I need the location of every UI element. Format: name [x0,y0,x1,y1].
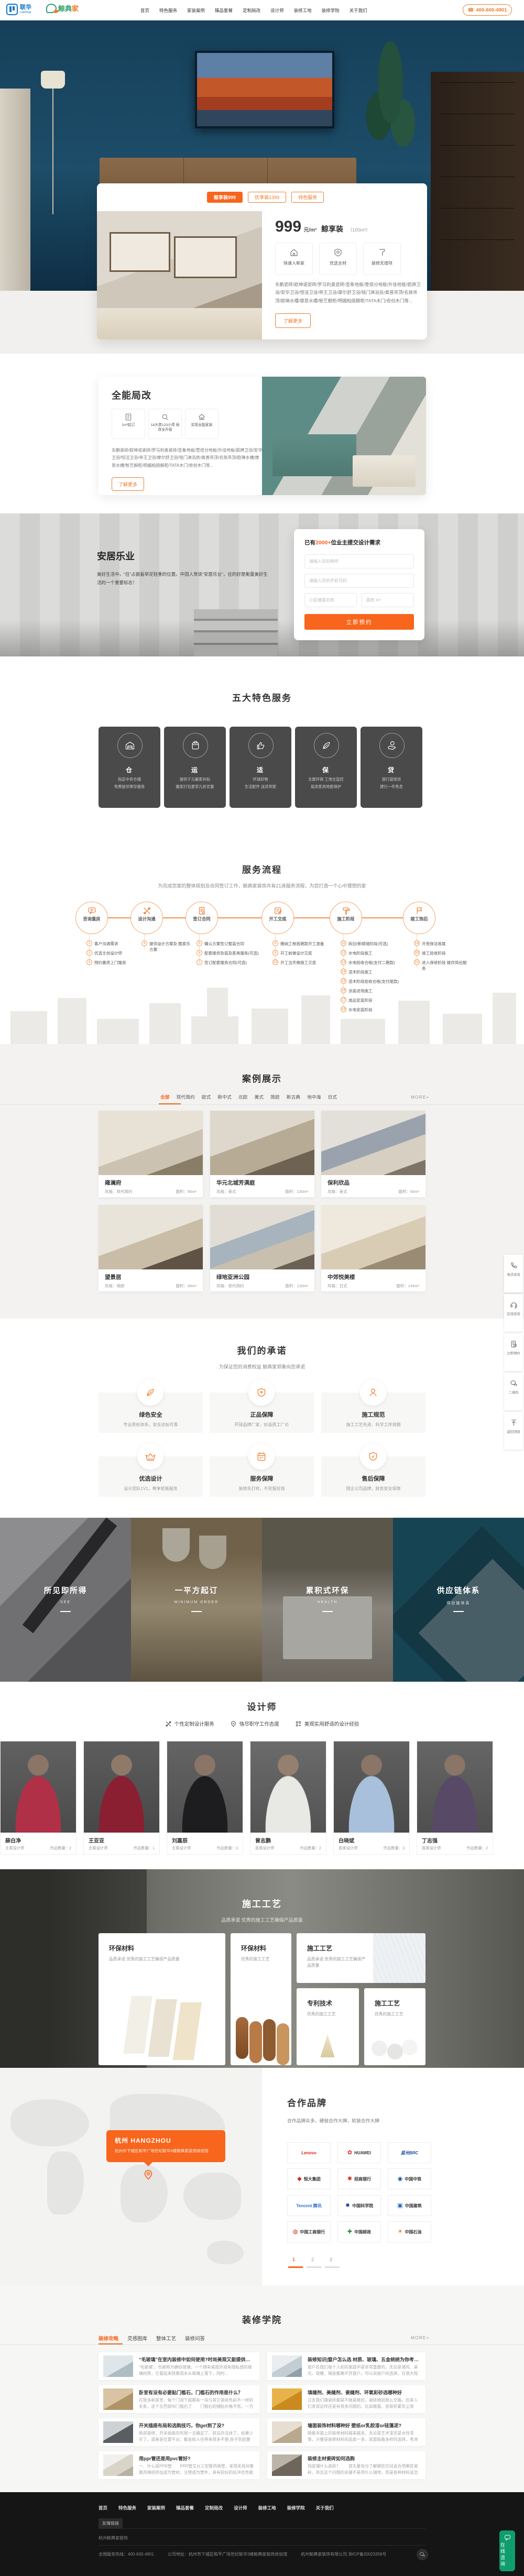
designer-photo [167,1741,243,1833]
map-continent [183,2173,241,2220]
flag-icon [415,906,424,915]
reno-learn-more-button[interactable]: 了解更多 [112,477,144,491]
name-input[interactable] [304,554,414,568]
stage-kickoff: 开工交底 [261,902,294,934]
crown-icon [145,1451,156,1462]
nav-about[interactable]: 关于我们 [350,7,367,14]
nav-academy[interactable]: 装修学院 [322,7,340,14]
brand-logo-evergrande: ◆恒大集团 [287,2168,331,2189]
nav-home[interactable]: 首页 [140,7,149,14]
case-tab-all[interactable]: 全部 [160,1093,170,1100]
callout-address: 杭州市下城区和平广场世纪联华3楼鲸典家装饰体验馆 [115,2148,209,2154]
world-map [0,2068,262,2285]
service-card-storage: 仓 指定中央仓储 免费提供寄存服务 [99,727,160,808]
strip-wysiwyg: 所见即所得SEE [0,1518,131,1682]
brand-logo-icbc: ◍中国工商银行 [287,2221,331,2242]
pagination-bar-3[interactable] [325,2266,340,2268]
package-tabs: 鲸享装999 优享装1399 特色服务 [207,192,324,203]
promise-title: 我们的承诺 [0,1343,524,1356]
lianhua-logo[interactable]: 联华 Lianhua [6,4,31,15]
brand-logo-lenovo: Lenovo [287,2142,331,2163]
skyline-building [301,995,330,1044]
service-line2: 生活配件 送货到家 [230,784,291,790]
case-photo [99,1111,203,1175]
house-icon [289,248,299,257]
sidebar-phone-consult[interactable]: 电话咨询 [504,1255,523,1292]
blueprint-decoration [373,1933,425,1983]
paint-tool-icon [377,248,387,257]
designer-photo [250,1741,326,1833]
pinwheel-icon [165,1720,172,1727]
designer-card[interactable]: 丁志强 首席设计师 作品数量：2 [417,1741,493,1855]
stage-construction: 施工阶段 [330,902,362,934]
case-card[interactable]: 保利欣品 风格：美式 面积：90m² [321,1111,425,1197]
case-card[interactable]: 中郊悦美楼 风格：日式 面积：145m² [321,1205,425,1291]
shield-icon [333,248,343,257]
reno-feature-min-order: 1m²起订 [112,409,145,439]
footer-wechat-button[interactable] [417,2549,428,2560]
feature-label: 装修无增项 [364,260,400,266]
service-line1: 全屋环保 工地全监控 [295,777,357,782]
paint-roller-icon [342,906,351,915]
article-card[interactable]: 装修知识|窗户怎么选 材质、玻璃、五金统统为你考虑到窗户在我们每个人的的家庭中是… [267,2352,425,2380]
submit-appointment-button[interactable]: 立即预约 [304,614,414,630]
price-unit: 元/m² [304,227,317,233]
contract-icon [198,906,206,915]
designer-features: 个性定制设计服务 恪尽职守工作态度 美观实用舒适的设计经验 [0,1720,524,1727]
nav-custom-reno[interactable]: 定制局改 [243,7,260,14]
case-photo [321,1205,425,1269]
stage-contract: 签订合同 [185,902,218,934]
brand-logo-chinapost: ✚中国邮政 [337,2221,381,2242]
reno-kitchen-photo [262,377,426,495]
hotline-number: 400-600-4901 [476,7,507,13]
pagination-bar-1[interactable] [288,2266,303,2268]
skyline-building [341,1019,385,1044]
form-title-prefix: 已有 [304,540,315,546]
brand-logo-cmb: ✱招商银行 [337,2168,381,2189]
academy-tab-craft[interactable]: 整体工艺 [156,2334,176,2342]
tab-youxiang-1399[interactable]: 优享装1399 [248,192,286,203]
nav-cases[interactable]: 家装案例 [187,7,205,14]
academy-tab-qa[interactable]: 装修问答 [185,2334,205,2342]
location-check-icon [230,1720,237,1727]
tab-jingxiang-999[interactable]: 鲸享装999 [207,192,243,203]
promise-subtitle: 为保证您的消费权益 鲸典家郑重向您承诺 [0,1363,524,1370]
callout-city: 杭州 HANGZHOU [115,2136,171,2145]
cases-title: 案例展示 [0,1071,524,1084]
designer-photo [334,1741,409,1833]
service-line1: 提供千元搬家补贴 [164,777,226,782]
hero-right-bookcase [431,72,524,291]
article-thumb [272,2355,302,2377]
grid-circles-icon [295,1720,302,1727]
process-title: 服务流程 [0,862,524,875]
feature-select-materials: 优选主材 [319,243,357,275]
feature-label: 优选主材 [320,260,356,266]
pagination-bar-2[interactable] [307,2266,321,2268]
case-name: 望景居 [105,1273,122,1281]
hero-wall-art [195,51,334,128]
designer-card[interactable]: 薛白净 主案设计师 作品数量：2 [0,1741,77,1855]
academy-title: 装修学院 [0,2312,524,2326]
cases-active-underline [159,1103,181,1104]
phone-icon [510,1262,518,1269]
service-line2: 局改家具地面保护 [295,784,357,790]
sidebar-online-consult[interactable]: 在线咨询 [504,1294,523,1332]
process-subtitle: 为完成您家的整体规划及合同签订工作，鲸典家装饰共有21道服务流程，为您打造一个心… [0,882,524,889]
warehouse-icon [125,740,135,751]
strip-supply-chain: 供应链体系供应链体系 [393,1518,524,1682]
designer-photo [84,1741,159,1833]
footer-info: 全国服务热线：400-600-4901 公司地址：杭州市下城区和平广场世纪联华3… [99,2551,386,2557]
brand-logo-crec: ◉中国中铁 [388,2168,431,2189]
brand-logo-tencent: Tencent 腾讯 [287,2195,331,2216]
header: 联华 Lianhua 鲸典家 首页 特色服务 家装案例 臻品套餐 定制局改 设计… [0,0,524,20]
skyline-building [252,1009,288,1044]
stage-label: 设计沟通 [131,916,162,922]
leaf-icon [321,740,332,751]
footer-nav-worksites[interactable]: 装修工地 [258,2505,276,2511]
craft-subtitle: 品质承诺 优秀的施工工艺确保产品质量 [0,1916,524,1923]
reno-feature-label: 实现全能家装 [185,423,218,427]
service-line1: 银行装修贷 [361,777,422,782]
brands-title: 合作品牌 [287,2096,327,2109]
case-tab-new-chinese[interactable]: 新中式 [217,1093,231,1100]
skyline-building [58,998,86,1044]
designer-card[interactable]: 王亚亚 主案设计师 作品数量：1 [83,1741,160,1855]
designer-card[interactable]: 曾志鹏 首席设计师 作品数量：2 [250,1741,326,1855]
stage-label: 咨询量房 [76,916,107,922]
stage-completion: 竣工饰后 [403,902,435,934]
feature-fast-movein: 快速入新家 [275,243,313,275]
case-card[interactable]: 绿地亚洲公园 风格：现代简约 面积：130m² [210,1205,314,1291]
article-card[interactable]: 开关插座布局和选购技巧，你get到了没?新房装修，开关插座的布局一旦确定了，就没… [99,2418,259,2446]
partial-reno-title: 全能局改 [112,388,151,402]
article-card[interactable]: 填缝剂、美缝剂、瓷缝剂、环氧彩砂选哪种好过去我们铺瓷砖都是不做美缝的，瓷砖缝就那… [267,2385,425,2413]
paper-rolls-decoration [372,2041,387,2056]
cases-divider [0,1104,524,1105]
trophy-decoration [319,2034,336,2057]
logo-en-text: Lianhua [20,11,31,14]
footer: 首页 特色服务 家装案例 臻品套餐 定制局改 设计师 装修工地 装修学院 关于我… [0,2492,524,2576]
case-photo [321,1111,425,1175]
friend-links-tab[interactable]: 友情链接 [99,2518,123,2528]
academy-more-link[interactable]: MORE+ [411,2335,429,2340]
brand-logo-cscec: ▣中国建筑 [388,2195,431,2216]
feature-no-extra-charge: 装修无增项 [363,243,401,275]
service-line2: 搬家打包更享九折优惠 [164,784,226,790]
steps-completion: 19开荒保洁收尾 20竣工验收阶段 21进入保修阶段 提供饰后服务 [414,940,469,971]
article-card[interactable]: “毛玻璃”在室内装修中如何使用?时尚美观又能提供隐私感“毛玻璃”，也被称为磨砂玻… [99,2352,259,2380]
footer-nav-packages[interactable]: 臻品套餐 [176,2505,194,2511]
reno-brands-desc: 东鹏瓷砖/欧神诺瓷砖/罗马利奥瓷砖/圣象地板/壹佰分地板/升佳地板/箭牌卫浴/安… [112,447,263,469]
wechat-icon [419,2551,425,2558]
steps-construction: 11拆旧/新砌墙阶段(可选) 12水电阶段施工 13水电验收合格(支付二期款) … [341,940,410,1013]
design-request-form: 已有2000+位业主提交设计需求 立即预约 [294,529,424,640]
case-tab-mediterranean[interactable]: 地中海 [307,1093,321,1100]
case-name: 绿地亚洲公园 [216,1273,249,1281]
article-thumb [103,2454,133,2476]
article-thumb [103,2355,133,2377]
calendar-icon [256,1451,267,1462]
case-tab-european[interactable]: 欧式 [202,1093,211,1100]
footer-nav-designers[interactable]: 设计师 [234,2505,247,2511]
service-card-protection: 保 全屋环保 工地全监控 局改家具地面保护 [295,727,357,808]
living-desc: 美好生活中，“住”占据着举足轻重的位置。中国人常说“安居乐业”，住的好是衡量美好… [97,570,270,587]
shield-check-icon [256,1387,267,1398]
hero-left-shelf [0,89,30,291]
service-char: 贷 [361,765,422,774]
nav-services[interactable]: 特色服务 [159,7,177,14]
article-card[interactable]: 用ppr管还是用pvc管好?一、什么是PPR管 PPR管又以三型聚丙烯管，采用无… [99,2451,259,2479]
article-card[interactable]: 墙面装饰材料哪种好 壁纸or乳胶漆or硅藻泥?随着市面上的装修材料越来越多，无论… [267,2418,425,2446]
reno-feature-label: 18大类120小项 局改全升级 [149,423,181,432]
feature-label: 快速入新家 [276,260,312,266]
thumbs-up-icon [256,740,266,751]
hero-plant [362,41,419,178]
steps-kickoff: 8缴纳工程首期款开工准备 9开工前做设计交底 10开工当天做施工交底 [272,940,336,966]
case-name: 华元北城芳满庭 [216,1179,255,1187]
reno-feature-full-home: 实现全能家装 [185,409,219,439]
tiles-decoration [123,1996,152,2054]
books-decoration [194,609,278,656]
leaf-icon [145,1387,156,1398]
home-icon [198,413,206,421]
chat-icon [88,906,96,915]
skyline-building [97,1019,139,1044]
package-photo [97,211,262,339]
hand-coin-icon [387,740,397,751]
stage-label: 施工阶段 [330,916,362,922]
craft-card-technique: 施工工艺 品质承诺 优秀的施工工艺确保产品质量 [297,1933,425,1983]
price-package-name: 鲸享装 [321,225,343,233]
steps-contract: 5确认方案签订整装合同 6配套提供软装及家具服务(可选) 7签订配套服务合同(可… [196,940,269,966]
booking-doc-icon [510,1340,518,1348]
brand-logo-brc: 蓝光BRC [388,2142,431,2163]
case-photo [210,1111,314,1175]
arrow-up-icon [510,1419,518,1427]
craft-card-eco-materials-2: 环保材料 优秀的施工工艺 [231,1933,291,2065]
footer-divider [99,2545,425,2546]
service-char: 保 [295,765,357,774]
logo2-jia-text: 家 [72,5,79,13]
service-card-moving: 运 提供千元搬家补贴 搬家打包更享九折优惠 [164,727,226,808]
pagination-page-2[interactable]: 2 [311,2257,314,2262]
case-filter-tabs: 全部 现代简约 欧式 新中式 北欧 美式 简欧 新古典 地中海 日式 [160,1093,337,1100]
case-card[interactable]: 雍澜府 风格：现代简约 面积：90m² [99,1111,203,1197]
estate-input[interactable] [304,593,357,607]
skyline-building [149,1003,181,1044]
living-title: 安居乐业 [97,549,135,563]
service-line1: 环球好物 [230,777,291,782]
designer-photo [1,1741,76,1833]
case-card[interactable]: 华元北城芳满庭 风格：美式 面积：130m² [210,1111,314,1197]
brand-logo-cas: ✹中国科学院 [337,2195,381,2216]
footer-company-icp: 杭州鲸典家装饰有限公司 浙ICP备20023358号 [301,2551,386,2557]
cases-more-link[interactable]: MORE+ [411,1094,429,1100]
stage-label: 开工交底 [262,916,293,922]
hotline-button[interactable]: ☎ 400-600-4901 [463,4,512,16]
phone-input[interactable] [304,574,414,588]
document-icon [124,413,133,421]
stage-label: 签订合同 [186,916,217,922]
academy-tab-guides[interactable]: 装修攻略 [99,2334,118,2342]
case-name: 中郊悦美楼 [327,1273,355,1281]
case-name: 保利欣品 [327,1179,350,1187]
footer-nav-home[interactable]: 首页 [99,2505,107,2511]
case-photo [210,1205,314,1269]
case-tab-japanese[interactable]: 日式 [327,1093,337,1100]
service-char: 适 [230,765,291,774]
article-card[interactable]: 卧室有没有必要贴门槛石，门槛石的作用是什么？在很多新房里，每个门洞下面都有一块与… [99,2385,259,2413]
area-input[interactable] [362,593,414,607]
case-tab-simple-euro[interactable]: 简欧 [270,1093,280,1100]
craft-card-technique-2: 施工工艺 优秀的施工工艺 [364,1988,425,2065]
sidebar-back-to-top[interactable]: 返回顶部 [504,1412,523,1450]
page-root: 联华 Lianhua 鲸典家 首页 特色服务 家装案例 臻品套餐 定制局改 设计… [0,0,524,2576]
craft-title: 施工工艺 [0,1897,524,1910]
service-card-goods: 适 环球好物 生活配件 送货到家 [230,727,291,808]
footer-nav: 首页 特色服务 家装案例 臻品套餐 定制局改 设计师 装修工地 装修学院 关于我… [99,2505,334,2511]
design-tools-icon [143,906,151,915]
magnifier-icon [161,413,169,421]
footer-nav-custom-reno[interactable]: 定制局改 [205,2505,223,2511]
map-continent [207,2241,244,2264]
steps-consult: 1客户沟通需求 2优选主创设计师 3预约量房上门服务 [86,940,148,966]
skyline-building [493,993,516,1044]
map-pin-icon [143,2169,154,2180]
logo2-text: 鲸典 [58,5,72,13]
shield-guard-icon [368,1451,378,1462]
academy-tab-gallery[interactable]: 灵感图库 [127,2334,147,2342]
online-consult-label: 在线咨询 [499,2542,506,2568]
case-tab-american[interactable]: 美式 [254,1093,264,1100]
article-thumb [272,2388,302,2410]
service-char: 运 [164,765,226,774]
footer-address: 公司地址：杭州市下城区和平广场世纪联华3楼鲸典家装饰体验馆 [168,2551,287,2557]
pagination-page-3[interactable]: 3 [330,2257,332,2262]
brand-logo-huawei: ✿HUAWEI [337,2142,381,2163]
stage-label: 竣工饰后 [403,916,435,922]
footer-divider [99,2528,425,2529]
nav-worksites[interactable]: 装修工地 [294,7,312,14]
strip-health: 累积式环保HEALTH [262,1518,393,1682]
brand-logo-petrochina: ☀中国石油 [388,2221,431,2242]
price-note: （100m²） [347,227,370,233]
craft-card-patent: 专利技术 优秀的施工工艺 [297,1988,359,2065]
wood-rolls-decoration [236,2017,248,2059]
case-tab-neoclassic[interactable]: 新古典 [287,1093,300,1100]
learn-more-button[interactable]: 了解更多 [275,313,311,328]
footer-nav-academy[interactable]: 装修学院 [287,2505,305,2511]
learn-more-label: 了解更多 [118,481,137,488]
whale-house-icon [46,4,57,13]
price-number: 999 [275,218,301,235]
case-name: 雍澜府 [105,1179,122,1187]
stage-design: 设计沟通 [130,902,163,934]
stage-consult-measure: 咨询量房 [75,902,108,934]
academy-tabs: 装修攻略 灵感图库 整体工艺 装修问答 [99,2334,205,2342]
lianhua-logo-icon [6,4,18,15]
wechat-icon [510,1379,518,1387]
skyline-building [10,1011,47,1044]
headset-icon [510,1301,518,1309]
jingdianjia-logo[interactable]: 鲸典家 [46,3,79,13]
phone-icon: ☎ [467,7,474,13]
online-consult-button[interactable]: 在线咨询 [499,2530,515,2571]
learn-more-label: 了解更多 [283,317,302,324]
sidebar-qrcode[interactable]: 二维码 [504,1373,523,1410]
case-tab-modern[interactable]: 现代简约 [177,1093,195,1100]
footer-nav-about[interactable]: 关于我们 [316,2505,334,2511]
article-thumb [103,2421,133,2443]
partial-reno-card: 全能局改 1m²起订 18大类120小项 局改全升级 实现全能家装 东鹏瓷砖/欧… [99,377,426,495]
service-line2: 免费提供寄存服务 [99,784,160,790]
skyline-building [443,1014,482,1044]
case-photo [99,1205,203,1269]
skyline-building [207,988,228,1044]
form-title-count: 2000+ [315,540,331,546]
service-line2: 建行一年免息 [361,784,422,790]
footer-nav-services[interactable]: 特色服务 [118,2505,136,2511]
logo-cn-text: 联华 [20,5,31,10]
service-card-loan: 贷 银行装修贷 建行一年免息 [361,727,422,808]
case-tab-nordic[interactable]: 北欧 [238,1093,248,1100]
designer-card[interactable]: 白晓斌 首席设计师 作品数量：3 [333,1741,410,1855]
article-thumb [103,2388,133,2410]
package-brands-desc: 东鹏瓷砖/欧神诺瓷砖/罗马利奥瓷砖/圣象地板/壹佰分地板/升佳地板/箭牌卫浴/安… [275,281,421,305]
designer-card[interactable]: 刘嘉辰 主案设计师 作品数量：0 [167,1741,243,1855]
tab-special-service[interactable]: 特色服务 [291,192,324,203]
nav-packages[interactable]: 臻品套餐 [215,7,233,14]
form-title: 已有2000+位业主提交设计需求 [304,539,380,546]
chat-bubble-icon [504,2534,511,2541]
worker-icon [368,1387,378,1398]
strip-min-order: 一平方起订MINIMUM ORDER [131,1518,262,1682]
package-card: 鲸享装999 优享装1399 特色服务 999 元/m² 鲸享装 （100m²）… [97,183,427,339]
sidebar-book-now[interactable]: 立即预约 [504,1333,523,1371]
hangzhou-callout[interactable]: 杭州 HANGZHOU 杭州市下城区和平广场世纪联华3楼鲸典家装饰体验馆 [106,2130,225,2162]
footer-hotline: 全国服务热线：400-600-4901 [99,2551,154,2557]
reno-feature-categories: 18大类120小项 局改全升级 [148,409,182,439]
main-nav: 首页 特色服务 家装案例 臻品套餐 定制局改 设计师 装修工地 装修学院 关于我… [140,0,367,20]
article-thumb [272,2454,302,2476]
footer-nav-cases[interactable]: 家装案例 [147,2505,165,2511]
academy-divider [0,2344,524,2345]
case-card[interactable]: 望景居 风格：简欧 面积：90m² [99,1205,203,1291]
form-title-suffix: 位业主提交设计需求 [331,540,381,546]
package-price: 999 元/m² 鲸享装 （100m²） [275,218,422,236]
pagination-page-1[interactable]: 1 [292,2257,295,2262]
clipboard-pen-icon [274,906,282,915]
article-card[interactable]: 装修主材瓷砖如何选购到底铺什么瓷砖？ 首先要充分了解哪些空间适合用哪些瓷砖，其实… [267,2451,425,2479]
designers-title: 设计师 [0,1700,524,1713]
friend-link[interactable]: 杭州鲸典家装饰 [99,2535,128,2541]
craft-card-eco-materials: 环保材料 品质承诺 优秀的施工工艺确保产品质量 [99,1933,225,2065]
nav-designers[interactable]: 设计师 [270,7,284,14]
hero-floor-lamp [41,71,65,89]
service-line1: 指定中央仓储 [99,777,160,782]
floating-sidebar: 电话咨询 在线咨询 立即预约 二维码 返回顶部 [504,1255,523,1451]
package-icon [190,740,201,751]
steps-design: 4提供设计方案及 酷家乐方案 [141,940,194,952]
article-thumb [272,2421,302,2443]
service-char: 仓 [99,765,160,774]
map-continent [47,2152,84,2215]
services-title: 五大特色服务 [0,690,524,704]
brands-subtitle: 合作品牌众多，硬装合作大牌，软装合作大牌 [287,2117,379,2124]
